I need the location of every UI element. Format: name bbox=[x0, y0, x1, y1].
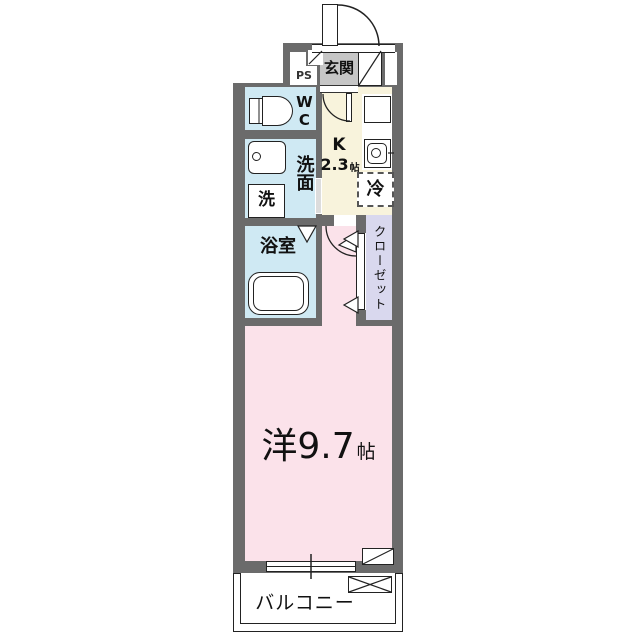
wall-wc-washroom bbox=[245, 130, 316, 139]
main-room-unit: 帖 bbox=[357, 443, 376, 466]
kitchen-size-label: 2.3帖 bbox=[314, 156, 366, 174]
washbasin-faucet-icon bbox=[252, 152, 261, 161]
sink-drain-icon bbox=[371, 148, 381, 158]
kitchen-size-unit: 帖 bbox=[350, 164, 360, 175]
entrance-door-arc bbox=[338, 5, 379, 46]
washer-label: 洗 bbox=[248, 184, 285, 218]
washroom-sliding-door bbox=[315, 178, 322, 214]
stove-icon bbox=[364, 96, 391, 123]
main-room-label: 洋9.7帖 bbox=[245, 410, 392, 466]
main-room-corridor bbox=[322, 226, 356, 326]
floor-plan: 玄関 PS WC 洗面 洗 浴室 K 2.3帖 冷 クローゼット 洋9.7帖 バ… bbox=[0, 0, 640, 640]
entrance-door-leaf bbox=[322, 4, 338, 46]
wall-washroom-bath bbox=[238, 218, 316, 226]
wall-left bbox=[233, 83, 245, 573]
wall-kitchen-bottom bbox=[322, 215, 334, 226]
bathtub-inner-icon bbox=[253, 276, 304, 311]
wall-closet-jamb-bottom bbox=[356, 310, 366, 322]
room-doorway bbox=[334, 215, 356, 226]
wall-right bbox=[392, 43, 403, 573]
balcony-label: バルコニー bbox=[240, 592, 370, 616]
entrance-label: 玄関 bbox=[320, 60, 358, 78]
shoe-cabinet bbox=[358, 50, 382, 86]
sliding-window bbox=[266, 561, 356, 572]
fridge-label: 冷 bbox=[357, 175, 394, 205]
closet-folding-door bbox=[356, 233, 365, 310]
pipe-space-label: PS bbox=[291, 68, 317, 84]
main-room-size: 洋9.7 bbox=[261, 428, 354, 466]
entrance-step bbox=[320, 85, 358, 93]
outdoor-unit-marker bbox=[348, 576, 392, 593]
bathroom-label: 浴室 bbox=[250, 236, 306, 258]
kitchen-size-value: 2.3 bbox=[320, 157, 348, 174]
ac-unit-marker bbox=[362, 548, 394, 565]
washroom-label: 洗面 bbox=[292, 145, 314, 200]
entrance-niche bbox=[385, 52, 397, 85]
wall-bath-room bbox=[238, 318, 322, 326]
kitchen-type-label: K bbox=[326, 137, 352, 155]
wall-closet-jamb-top bbox=[356, 215, 366, 233]
toilet-tank-icon bbox=[249, 98, 263, 124]
wc-label: WC bbox=[294, 92, 313, 130]
closet-label: クローゼット bbox=[368, 219, 390, 317]
toilet-bowl-icon bbox=[262, 96, 293, 126]
kitchen-door-leaf bbox=[346, 93, 352, 122]
